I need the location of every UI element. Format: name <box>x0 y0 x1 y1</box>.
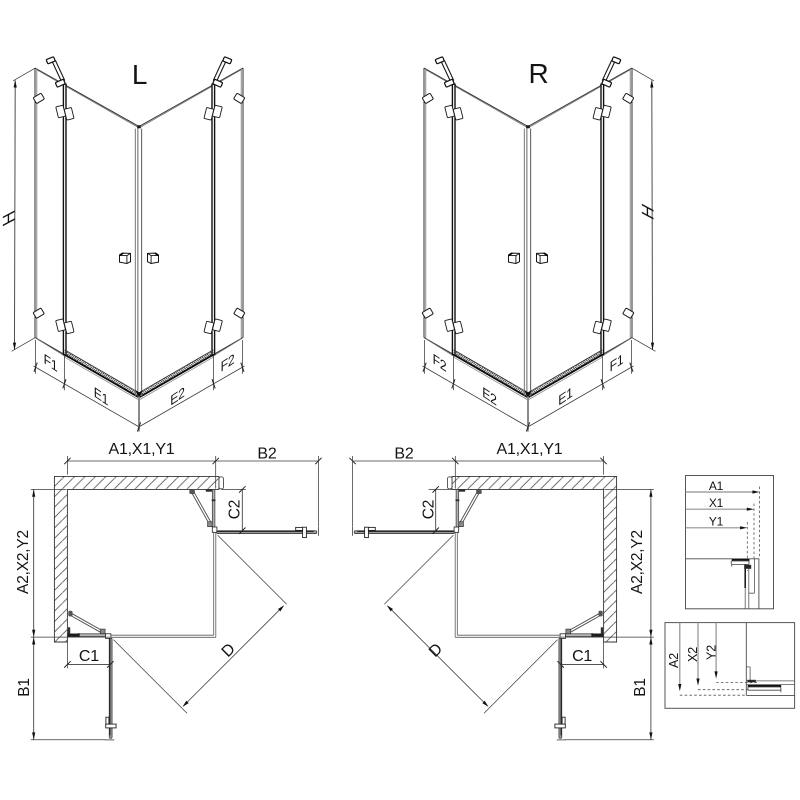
svg-text:H: H <box>639 201 658 223</box>
svg-text:R: R <box>528 58 548 89</box>
svg-text:F2: F2 <box>221 351 235 376</box>
svg-text:X2: X2 <box>686 647 700 662</box>
svg-text:F1: F1 <box>44 351 58 376</box>
svg-text:A2,X2,Y2: A2,X2,Y2 <box>15 530 32 594</box>
svg-text:C2: C2 <box>226 500 243 519</box>
svg-text:A1: A1 <box>709 479 724 493</box>
svg-text:D: D <box>426 641 446 661</box>
svg-text:B2: B2 <box>394 446 413 463</box>
svg-text:B1: B1 <box>632 678 649 697</box>
svg-text:E2: E2 <box>170 384 185 409</box>
svg-text:A1,X1,Y1: A1,X1,Y1 <box>496 441 562 458</box>
svg-text:F2: F2 <box>433 351 447 376</box>
svg-text:Y1: Y1 <box>709 515 724 529</box>
svg-text:F1: F1 <box>610 351 624 376</box>
svg-text:B1: B1 <box>16 678 33 697</box>
svg-text:C2: C2 <box>421 500 438 519</box>
svg-text:A2: A2 <box>667 653 681 668</box>
svg-text:C1: C1 <box>572 648 592 665</box>
svg-text:E2: E2 <box>482 384 497 409</box>
svg-text:D: D <box>219 641 239 661</box>
svg-text:B2: B2 <box>257 446 276 463</box>
svg-text:E1: E1 <box>94 384 109 409</box>
svg-text:L: L <box>132 59 147 90</box>
svg-text:E1: E1 <box>558 384 573 409</box>
svg-text:H: H <box>0 207 18 229</box>
svg-text:Y2: Y2 <box>704 645 718 660</box>
svg-text:X1: X1 <box>709 496 724 510</box>
svg-text:A1,X1,Y1: A1,X1,Y1 <box>108 441 174 458</box>
svg-text:A2,X2,Y2: A2,X2,Y2 <box>629 530 646 594</box>
svg-text:C1: C1 <box>79 648 99 665</box>
